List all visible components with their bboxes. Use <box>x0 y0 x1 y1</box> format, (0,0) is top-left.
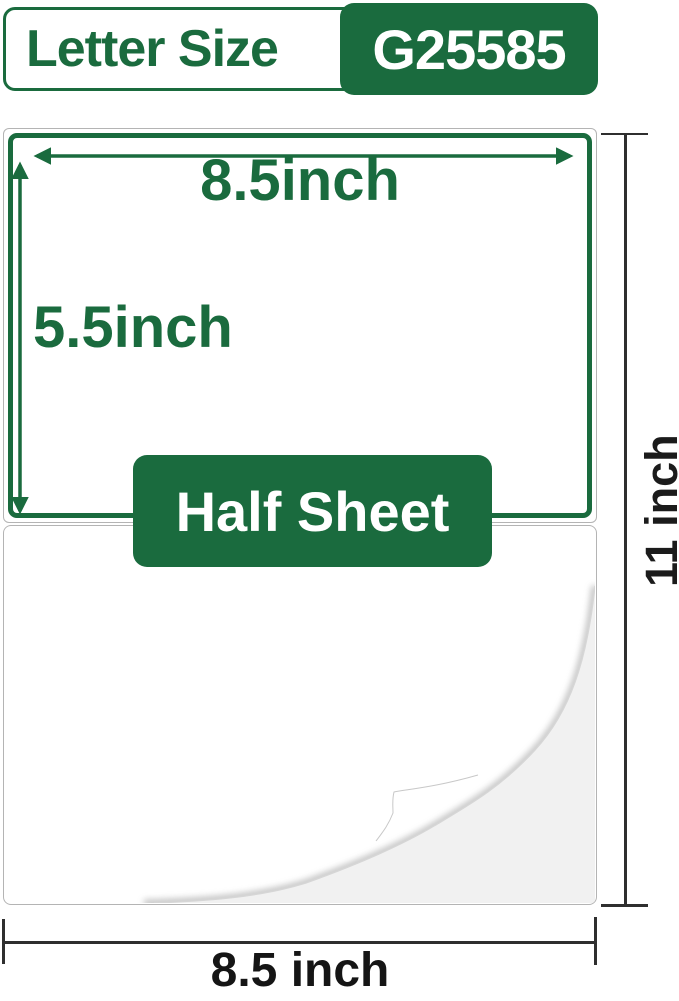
model-code: G25585 <box>372 17 565 82</box>
half-sheet-label: Half Sheet <box>176 479 450 544</box>
page-curl-icon <box>4 526 595 903</box>
header-title: Letter Size <box>6 19 278 79</box>
height-dimension-line <box>624 134 627 906</box>
height-dimension-tick-top <box>601 133 648 136</box>
page-height-text: 11 inch <box>636 437 679 587</box>
sheet-bottom-half <box>3 525 597 905</box>
label-height-text: 5.5inch <box>33 299 233 357</box>
label-width-text: 8.5inch <box>3 152 597 210</box>
product-diagram: Letter Size G25585 8.5inch 5.5inch <box>0 0 679 1001</box>
header-title-box: Letter Size <box>3 7 365 91</box>
page-width-text: 8.5 inch <box>3 947 597 995</box>
half-sheet-badge: Half Sheet <box>133 455 492 567</box>
model-code-badge: G25585 <box>340 3 598 95</box>
height-dimension-tick-bottom <box>601 904 648 907</box>
